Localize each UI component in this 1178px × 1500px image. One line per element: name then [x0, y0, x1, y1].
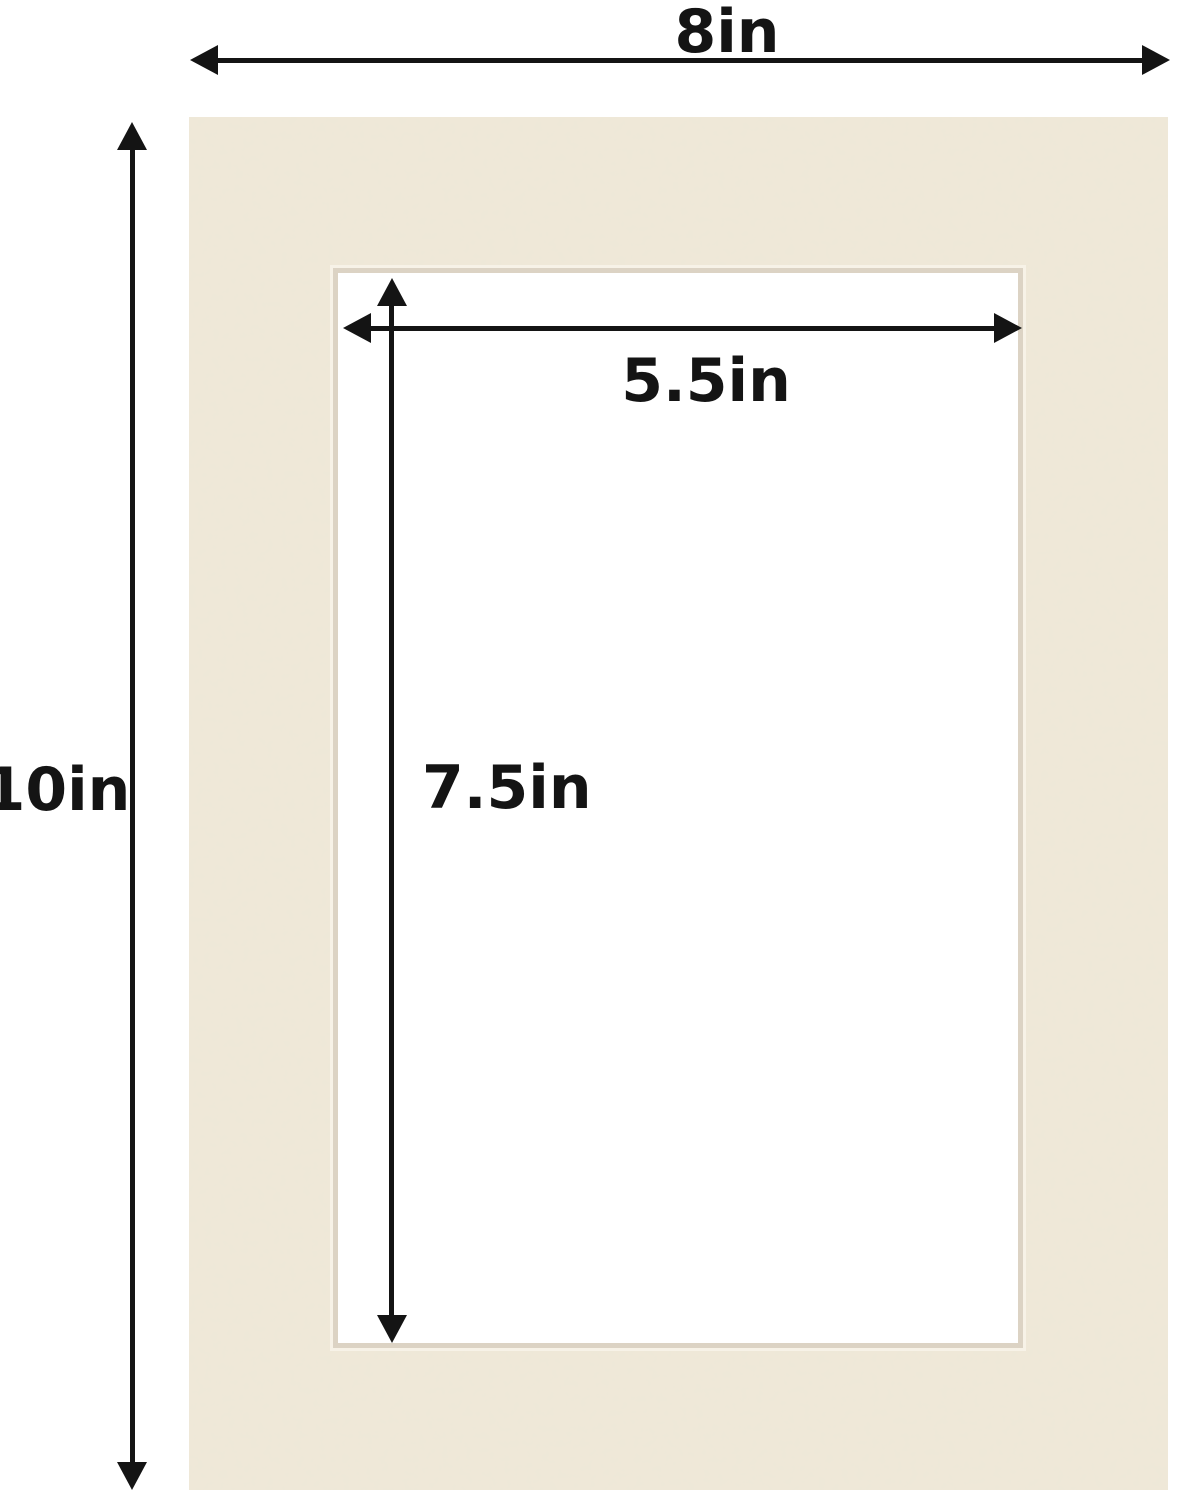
arrowhead-down-icon	[117, 1462, 147, 1490]
arrow-line	[368, 326, 997, 331]
outer-height-label: 10in	[0, 760, 130, 820]
frame-mat-diagram: 8in 10in 5.5in 7.5in	[0, 0, 1178, 1500]
arrow-line	[389, 303, 394, 1318]
outer-width-label: 8in	[674, 2, 779, 62]
arrowhead-left-icon	[190, 45, 218, 75]
arrow-line	[130, 147, 135, 1465]
arrowhead-up-icon	[117, 122, 147, 150]
opening-width-label: 5.5in	[621, 351, 791, 411]
arrowhead-right-icon	[994, 313, 1022, 343]
arrowhead-down-icon	[377, 1315, 407, 1343]
arrowhead-up-icon	[377, 278, 407, 306]
opening-height-label: 7.5in	[422, 758, 592, 818]
arrowhead-right-icon	[1142, 45, 1170, 75]
arrowhead-left-icon	[343, 313, 371, 343]
